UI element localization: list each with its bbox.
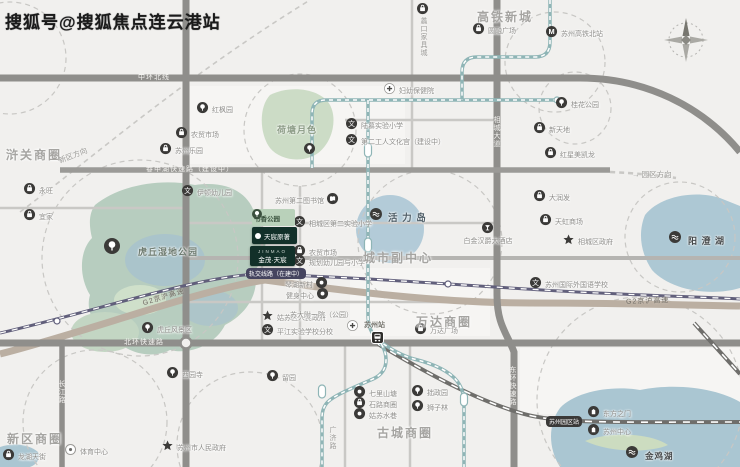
map-poi: 红星美凯龙 (545, 147, 557, 159)
poi-label: 宜家 (39, 212, 53, 222)
brand-project-label: 金茂·天宸 (250, 254, 295, 264)
poi-label: 永旺 (39, 186, 53, 196)
star-icon (162, 440, 174, 452)
poi-label: 桂花公园 (571, 100, 599, 110)
poi-label: 红枫园 (212, 105, 233, 115)
map-poi: 文陆慕实验小学 (346, 118, 358, 130)
map-poi: 红枫园 (197, 102, 209, 114)
cart-icon (545, 147, 557, 159)
tree-icon (252, 209, 262, 219)
suzhou-station-label: 苏州站 (364, 320, 385, 330)
construction-line-tag: 轨交线路（在建中） (246, 268, 306, 279)
road-label: 长江路 (56, 380, 66, 404)
map-poi: 文规划幼儿园与小学 (294, 255, 306, 267)
svg-text:M: M (548, 27, 554, 36)
svg-text:文: 文 (348, 135, 355, 144)
tree-icon (556, 97, 568, 109)
svg-text:文: 文 (348, 119, 355, 128)
road-label: 春申湖快速路（建设中） (146, 164, 234, 174)
tree-icon (197, 102, 209, 114)
cart-icon (24, 209, 36, 221)
metro-icon: M (546, 26, 558, 38)
poi-label: 农贸市场 (191, 130, 219, 140)
map-poi: 妇幼保健院 (384, 83, 396, 95)
road-label: G2京沪高速 (626, 295, 670, 307)
location-map: 书香公园 天宸原著 JINMAO 金茂·天宸 搜狐号@搜狐焦点连云港站 红枫园农… (0, 0, 740, 467)
svg-text:文: 文 (532, 278, 539, 287)
tree-icon (142, 322, 154, 334)
poi-label: 苏州第二图书馆 (275, 196, 324, 206)
map-poi: 苏州市人民政府 (162, 440, 174, 452)
bldg-icon (588, 424, 600, 436)
svg-text:文: 文 (264, 325, 271, 334)
cart-icon (160, 143, 172, 155)
lake-icon (669, 231, 681, 243)
map-poi: 健身中心 (317, 288, 329, 300)
poi-label: 伊顿幼儿园 (197, 188, 232, 198)
cart-icon (540, 214, 552, 226)
park-label: 荷塘月色 (277, 123, 317, 136)
poi-label: 大润发 (549, 193, 570, 203)
poi-label: 虎丘风景区 (157, 325, 192, 335)
road-label: 北环快速路 (124, 337, 164, 347)
map-poi: 文伊顿幼儿园 (182, 185, 194, 197)
map-poi (417, 3, 429, 15)
ring-icon (65, 444, 77, 456)
road-label: 蠡口家具城 (418, 17, 428, 57)
map-poi: 文苏州国际外国语学校 (530, 277, 542, 289)
dot-icon (354, 408, 366, 420)
poi-label: 姑苏水巷 (369, 411, 397, 421)
poi-label: 苏州乐园 (175, 146, 203, 156)
road-label: 相城大道 (491, 116, 501, 148)
map-poi: 宜家 (24, 209, 36, 221)
map-poi: 狮子林 (412, 400, 424, 412)
tree-icon (267, 370, 279, 382)
poi-label: 苏州国际外国语学校 (545, 280, 608, 290)
tree-icon (412, 400, 424, 412)
poi-label: 相城区第二实验小学 (309, 219, 372, 229)
map-poi: 白金汉爵大酒店 (482, 222, 494, 234)
poi-label: 健身中心 (286, 291, 314, 301)
school-icon: 文 (530, 277, 542, 289)
district-label: 浒关商圈 (6, 146, 62, 163)
map-poi: 文平江实验学校分校 (262, 324, 274, 336)
district-label: 高铁新城 (477, 8, 533, 25)
map-poi: 苏州乐园 (160, 143, 172, 155)
map-poi: 新天地 (534, 122, 546, 134)
map-poi: 苏州中心 (588, 424, 600, 436)
map-poi: 苏州第二图书馆 (327, 193, 339, 205)
map-poi: 永旺 (24, 183, 36, 195)
dot-icon (317, 288, 329, 300)
map-poi: M苏州高铁北站 (546, 26, 558, 38)
map-poi: 大润发 (534, 190, 546, 202)
tree-icon (412, 385, 424, 397)
cart-icon (3, 449, 15, 461)
park-label: 活 力 岛 (388, 210, 427, 224)
map-poi: 拙政园 (412, 385, 424, 397)
cart-icon (534, 122, 546, 134)
svg-text:文: 文 (184, 186, 191, 195)
poi-label: 西园寺 (182, 370, 203, 380)
poi-label: 红星美凯龙 (560, 150, 595, 160)
poi-label: 龙湖天街 (18, 452, 46, 462)
train-icon (371, 331, 384, 344)
star-icon (563, 234, 575, 246)
map-poi: 龙湖天街 (3, 449, 15, 461)
poi-label: 拙政园 (427, 388, 448, 398)
poi-label: 体育中心 (80, 447, 108, 457)
tree-icon (304, 143, 315, 154)
poi-label: 苏州中心 (603, 427, 631, 437)
hosp-icon (347, 320, 359, 332)
hotel-icon (482, 222, 494, 234)
bldg-icon (588, 406, 600, 418)
map-poi: 相城区政府 (563, 234, 575, 246)
park-label: 金鸡湖 (645, 450, 674, 462)
map-poi: 姑苏区人民政府 (262, 310, 274, 322)
road-label: 东环快速路 (507, 366, 517, 406)
poi-label: 苏州市人民政府 (177, 443, 226, 453)
sohu-watermark: 搜狐号@搜狐焦点连云港站 (5, 8, 221, 33)
poi-label: 第二工人文化宫（建设中） (361, 137, 445, 147)
district-label: 古城商圈 (377, 424, 433, 441)
cart-icon (24, 183, 36, 195)
map-poi: 苏大附一院（公园） (347, 320, 359, 332)
star-icon (262, 310, 274, 322)
lake-icon (370, 208, 382, 220)
park-label: 阳 澄 湖 (688, 234, 725, 247)
poi-label: 白金汉爵大酒店 (464, 236, 513, 246)
cart-icon (176, 127, 188, 139)
svg-text:文: 文 (296, 217, 303, 226)
poi-label: 圆融广场 (488, 26, 516, 36)
district-label: 新区商圈 (7, 430, 63, 447)
road-label: 广济路 (327, 426, 337, 450)
compass-icon (664, 18, 708, 62)
map-poi: 文第二工人文化宫（建设中） (346, 134, 358, 146)
map-poi: 东方之门 (588, 406, 600, 418)
school-icon: 文 (182, 185, 194, 197)
project-logo-icon (255, 233, 261, 239)
tree-icon (104, 238, 120, 254)
poi-label: 狮子林 (427, 403, 448, 413)
map-poi: 体育中心 (65, 444, 77, 456)
yuanqu-station-tag: 苏州园区站 (546, 416, 582, 427)
cart-icon (417, 3, 429, 15)
park-label: 虎丘湿地公园 (138, 245, 198, 258)
district-label: 城市副中心 (363, 249, 433, 266)
map-poi: 虎丘风景区 (142, 322, 154, 334)
school-icon: 文 (346, 118, 358, 130)
school-icon: 文 (262, 324, 274, 336)
map-poi: 姑苏水巷 (354, 408, 366, 420)
poi-label: 相城区政府 (578, 237, 613, 247)
school-icon: 文 (346, 134, 358, 146)
map-poi: 留园 (267, 370, 279, 382)
poi-label: 七里山塘 (369, 389, 397, 399)
map-poi: 桂花公园 (556, 97, 568, 109)
poi-label: 天虹商场 (555, 217, 583, 227)
cart-icon (534, 190, 546, 202)
map-poi: 西园寺 (167, 367, 179, 379)
suzhou-railway-station (371, 331, 383, 343)
map-poi: 天虹商场 (540, 214, 552, 226)
lake-icon (626, 446, 638, 458)
poi-label: 留园 (282, 373, 296, 383)
project-name-label: 天宸原著 (264, 231, 290, 241)
school-icon: 文 (294, 255, 306, 267)
road-label: 中环北线 (138, 72, 170, 82)
poi-label: 苏州高铁北站 (561, 29, 603, 39)
poi-label: 平江实验学校分校 (277, 327, 333, 337)
svg-text:文: 文 (296, 256, 303, 265)
shuxiang-park-box: 书香公园 (252, 209, 295, 226)
direction-label: → 园区方向 (632, 169, 672, 180)
poi-label: 农贸市场 (309, 248, 337, 258)
tree-icon (167, 367, 179, 379)
hosp-icon (384, 83, 396, 95)
district-label: 万达商圈 (416, 313, 472, 330)
poi-label: 陆慕实验小学 (361, 121, 403, 131)
poi-label: 苏大附一院（公园） (290, 310, 353, 320)
interchange-icon (181, 338, 192, 349)
book-icon (327, 193, 339, 205)
poi-label: 规划幼儿园与小学 (309, 258, 365, 268)
poi-label: 琴湖新村 (285, 280, 313, 290)
poi-label: 妇幼保健院 (399, 86, 434, 96)
poi-label: 新天地 (549, 125, 570, 135)
project-marker-2: JINMAO 金茂·天宸 (250, 246, 295, 266)
map-poi: 农贸市场 (176, 127, 188, 139)
poi-label: 石路商圈 (369, 400, 397, 410)
project-marker-1: 天宸原著 (252, 227, 297, 244)
poi-label: 东方之门 (603, 409, 631, 419)
